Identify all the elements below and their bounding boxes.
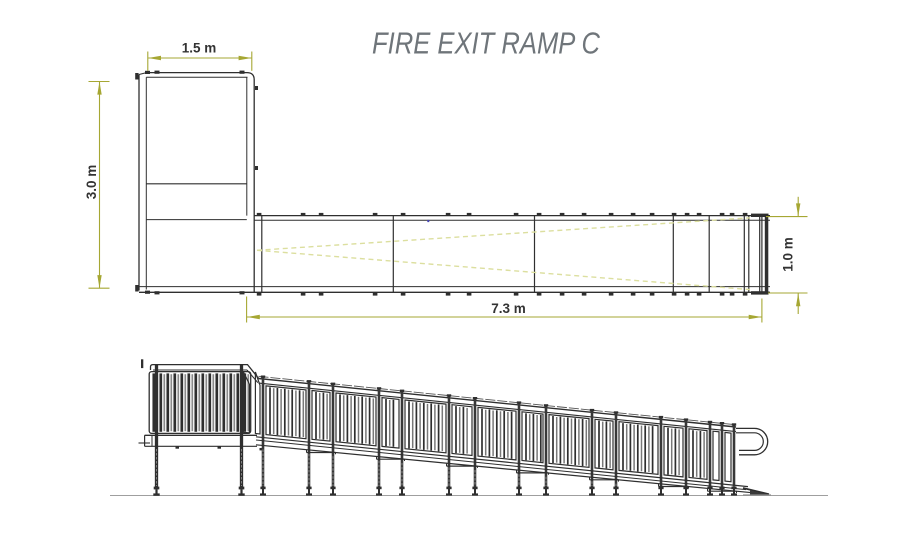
svg-text:FIRE EXIT RAMP C: FIRE EXIT RAMP C bbox=[372, 26, 601, 61]
svg-text:7.3 m: 7.3 m bbox=[491, 301, 526, 316]
svg-text:3.0 m: 3.0 m bbox=[84, 165, 99, 200]
svg-text:1.0 m: 1.0 m bbox=[780, 237, 795, 272]
svg-text:1.5 m: 1.5 m bbox=[182, 41, 217, 56]
